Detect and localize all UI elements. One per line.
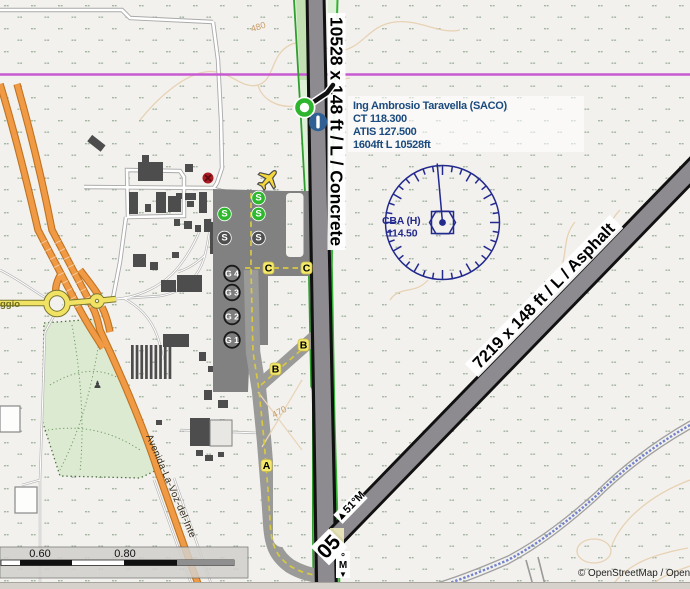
svg-text:S: S [221, 233, 227, 244]
svg-text:© OpenStreetMap / OpenTopo: © OpenStreetMap / OpenTopo [578, 568, 690, 579]
svg-text:ATIS 127.500: ATIS 127.500 [353, 126, 417, 138]
svg-text:B: B [300, 340, 308, 352]
svg-text:CBA (H): CBA (H) [382, 215, 420, 227]
svg-text:S: S [255, 193, 261, 204]
svg-text:▼: ▼ [339, 570, 347, 579]
svg-text:S: S [255, 233, 261, 244]
svg-text:G 3: G 3 [225, 288, 239, 298]
svg-text:0.60: 0.60 [29, 548, 50, 560]
svg-text:C: C [303, 263, 311, 275]
svg-text:1604ft L 10528ft: 1604ft L 10528ft [353, 139, 431, 151]
svg-text:0.80: 0.80 [114, 548, 135, 560]
svg-text:Ing Ambrosio Taravella (SACO): Ing Ambrosio Taravella (SACO) [353, 100, 508, 112]
svg-text:G 4: G 4 [225, 269, 239, 279]
svg-text:C: C [265, 263, 273, 275]
svg-text:ggio: ggio [0, 299, 20, 310]
svg-text:G 1: G 1 [225, 335, 239, 345]
svg-text:CT 118.300: CT 118.300 [353, 113, 407, 125]
svg-text:♟: ♟ [93, 380, 102, 391]
svg-text:114.50: 114.50 [387, 228, 418, 240]
svg-text:S: S [221, 209, 227, 220]
svg-text:A: A [263, 460, 271, 472]
svg-text:B: B [272, 364, 280, 376]
svg-text:G 2: G 2 [225, 312, 239, 322]
svg-text:10528 x 148 ft / L / Concrete: 10528 x 148 ft / L / Concrete [327, 17, 347, 247]
svg-text:S: S [255, 209, 261, 220]
